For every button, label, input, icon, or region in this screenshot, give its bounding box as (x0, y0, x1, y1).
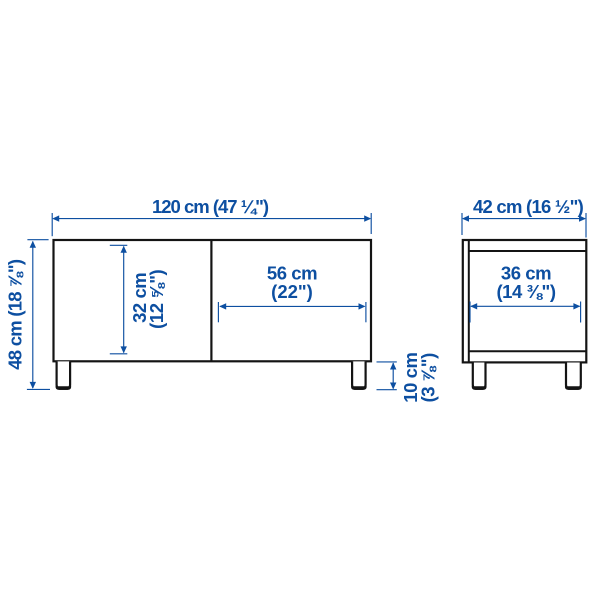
svg-text:(14 ⅜"): (14 ⅜") (496, 281, 555, 302)
svg-text:48 cm (18 ⅞"): 48 cm (18 ⅞") (5, 259, 26, 370)
svg-text:(12 ⅝"): (12 ⅝") (146, 269, 167, 328)
svg-text:42 cm (16 ½"): 42 cm (16 ½") (473, 196, 584, 217)
svg-text:(3 ⅞"): (3 ⅞") (418, 353, 439, 403)
svg-text:120 cm (47 ¼"): 120 cm (47 ¼") (152, 196, 269, 217)
svg-text:(22"): (22") (271, 281, 313, 302)
